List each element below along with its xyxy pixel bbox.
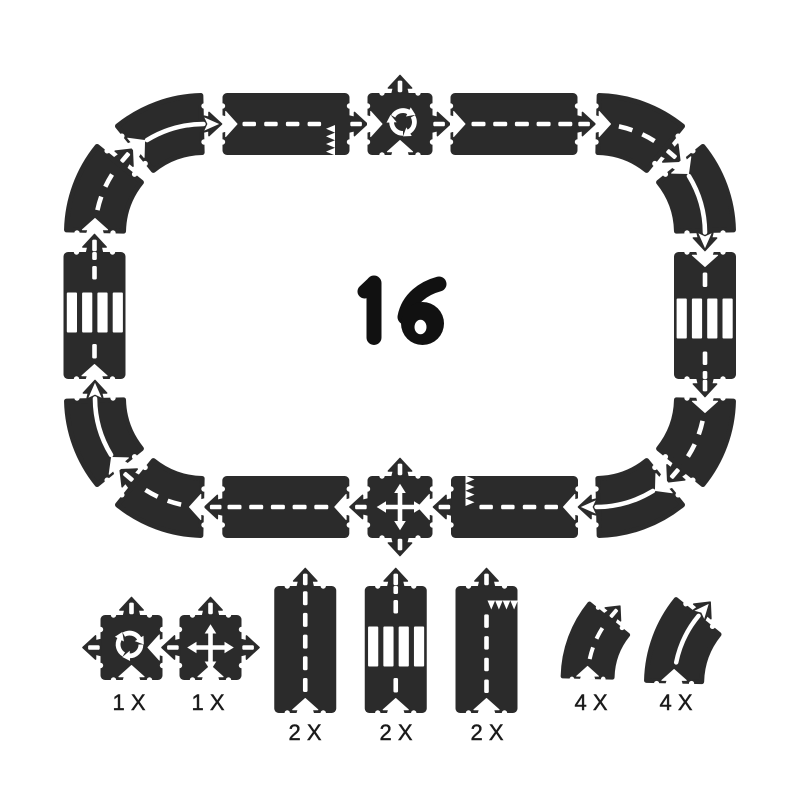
svg-text:1 X: 1 X — [191, 690, 224, 715]
svg-text:2 X: 2 X — [288, 720, 321, 745]
svg-text:2 X: 2 X — [470, 720, 503, 745]
svg-text:2 X: 2 X — [379, 720, 412, 745]
svg-text:4 X: 4 X — [574, 690, 607, 715]
svg-text:1 X: 1 X — [112, 690, 145, 715]
svg-text:4 X: 4 X — [659, 690, 692, 715]
